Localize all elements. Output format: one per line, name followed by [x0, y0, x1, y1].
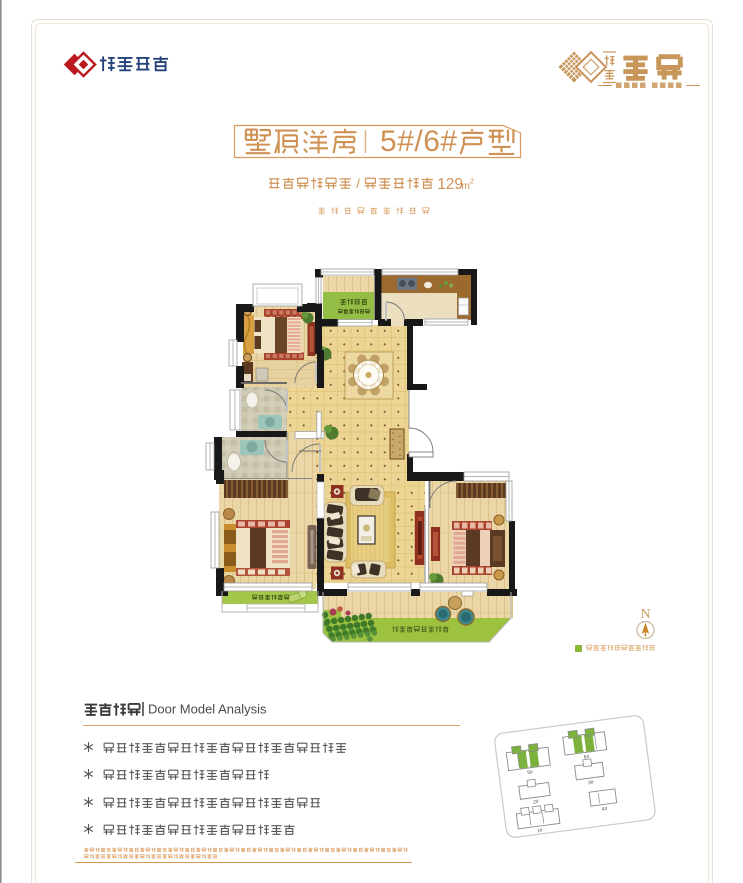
- svg-text:Door Model Analysis: Door Model Analysis: [148, 702, 267, 717]
- svg-text:5#: 5#: [527, 769, 534, 776]
- svg-text:/: /: [356, 176, 360, 191]
- svg-text:N: N: [640, 607, 650, 622]
- svg-text:2: 2: [470, 177, 474, 186]
- svg-text:2#: 2#: [533, 799, 540, 806]
- svg-text:3#: 3#: [588, 780, 595, 787]
- svg-text:5#/6#: 5#/6#: [380, 125, 458, 158]
- svg-text:1#: 1#: [537, 828, 544, 835]
- svg-text:4#: 4#: [601, 806, 608, 813]
- svg-text:129: 129: [437, 176, 463, 193]
